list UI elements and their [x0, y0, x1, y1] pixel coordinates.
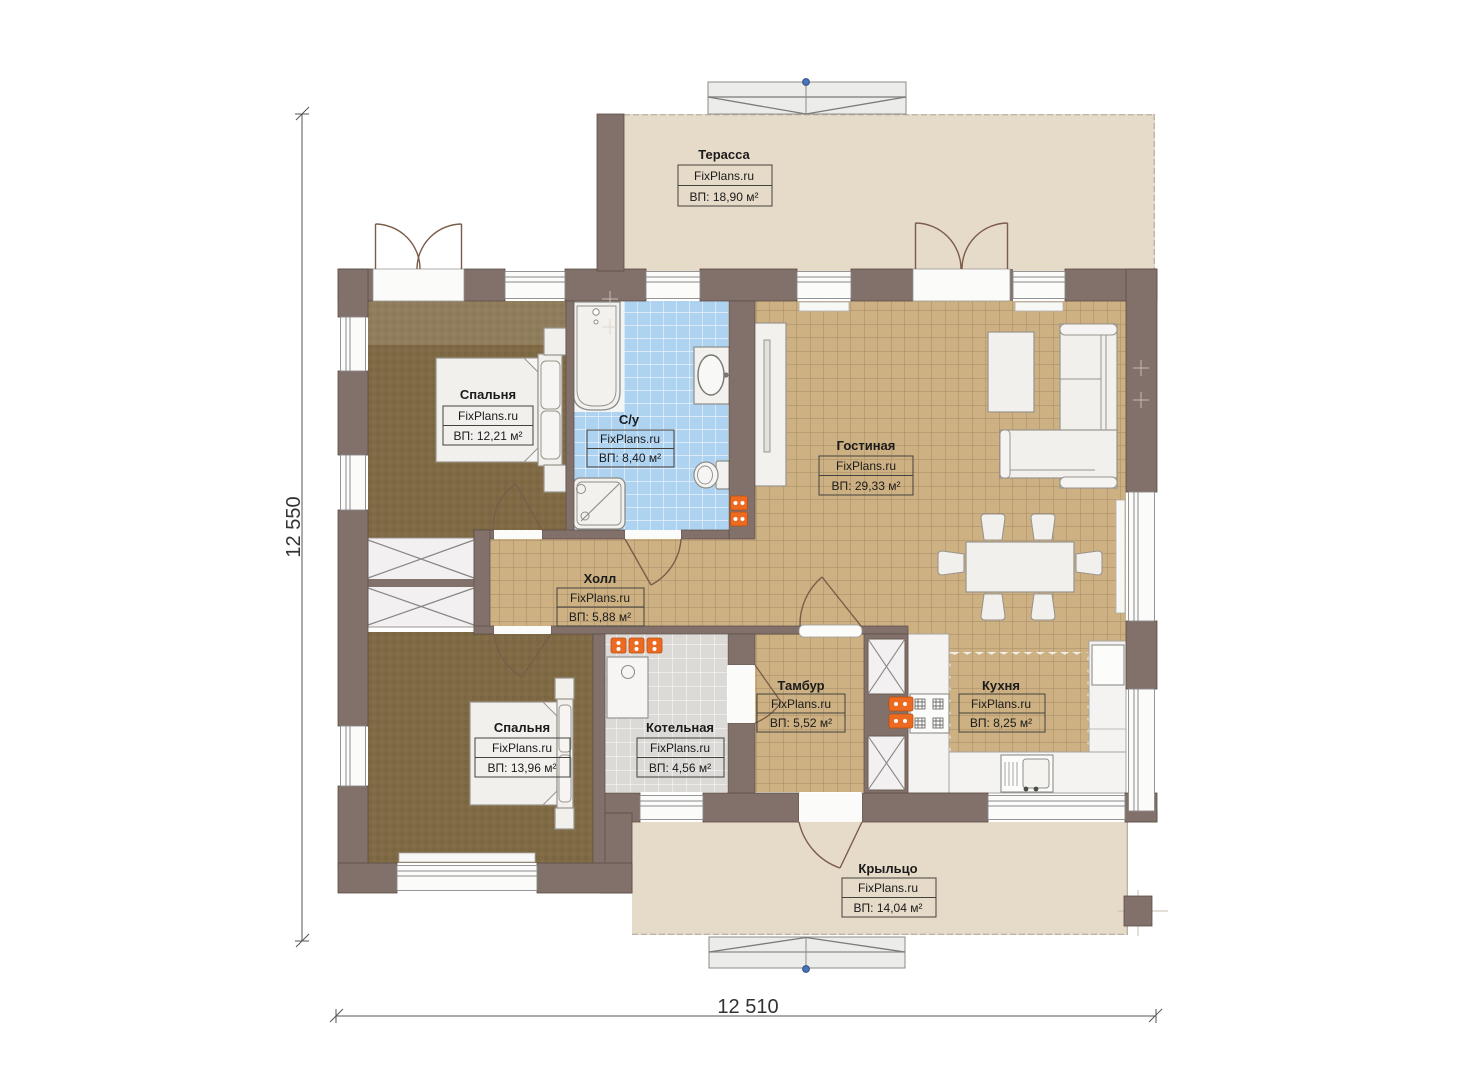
svg-text:ВП: 5,52 м²: ВП: 5,52 м²: [770, 716, 832, 730]
svg-text:Спальня: Спальня: [460, 387, 516, 402]
svg-text:С/у: С/у: [619, 412, 640, 427]
svg-text:12 550: 12 550: [283, 496, 305, 557]
svg-text:ВП: 8,40 м²: ВП: 8,40 м²: [599, 451, 661, 465]
svg-text:FixPlans.ru: FixPlans.ru: [600, 432, 660, 446]
svg-text:Гостиная: Гостиная: [837, 438, 896, 453]
svg-text:FixPlans.ru: FixPlans.ru: [858, 881, 918, 895]
svg-text:FixPlans.ru: FixPlans.ru: [650, 741, 710, 755]
svg-text:FixPlans.ru: FixPlans.ru: [458, 409, 518, 423]
svg-text:Крыльцо: Крыльцо: [858, 861, 917, 876]
svg-text:FixPlans.ru: FixPlans.ru: [570, 591, 630, 605]
svg-text:ВП: 8,25 м²: ВП: 8,25 м²: [970, 716, 1032, 730]
svg-text:Холл: Холл: [584, 571, 617, 586]
svg-text:ВП: 14,04 м²: ВП: 14,04 м²: [854, 901, 923, 915]
svg-text:12 510: 12 510: [717, 996, 778, 1018]
svg-text:FixPlans.ru: FixPlans.ru: [836, 459, 896, 473]
svg-text:ВП: 12,21 м²: ВП: 12,21 м²: [454, 429, 523, 443]
svg-text:ВП: 18,90 м²: ВП: 18,90 м²: [690, 190, 759, 204]
svg-text:ВП: 4,56 м²: ВП: 4,56 м²: [649, 761, 711, 775]
svg-text:FixPlans.ru: FixPlans.ru: [492, 741, 552, 755]
svg-text:Тамбур: Тамбур: [777, 678, 824, 693]
svg-text:FixPlans.ru: FixPlans.ru: [971, 697, 1031, 711]
svg-text:ВП: 13,96 м²: ВП: 13,96 м²: [488, 761, 557, 775]
svg-text:Кухня: Кухня: [982, 678, 1020, 693]
svg-text:ВП: 5,88 м²: ВП: 5,88 м²: [569, 610, 631, 624]
svg-text:Котельная: Котельная: [646, 720, 714, 735]
svg-text:ВП: 29,33 м²: ВП: 29,33 м²: [832, 479, 901, 493]
svg-text:FixPlans.ru: FixPlans.ru: [694, 169, 754, 183]
svg-text:Терасса: Терасса: [698, 147, 750, 162]
svg-text:FixPlans.ru: FixPlans.ru: [771, 697, 831, 711]
svg-text:Спальня: Спальня: [494, 720, 550, 735]
